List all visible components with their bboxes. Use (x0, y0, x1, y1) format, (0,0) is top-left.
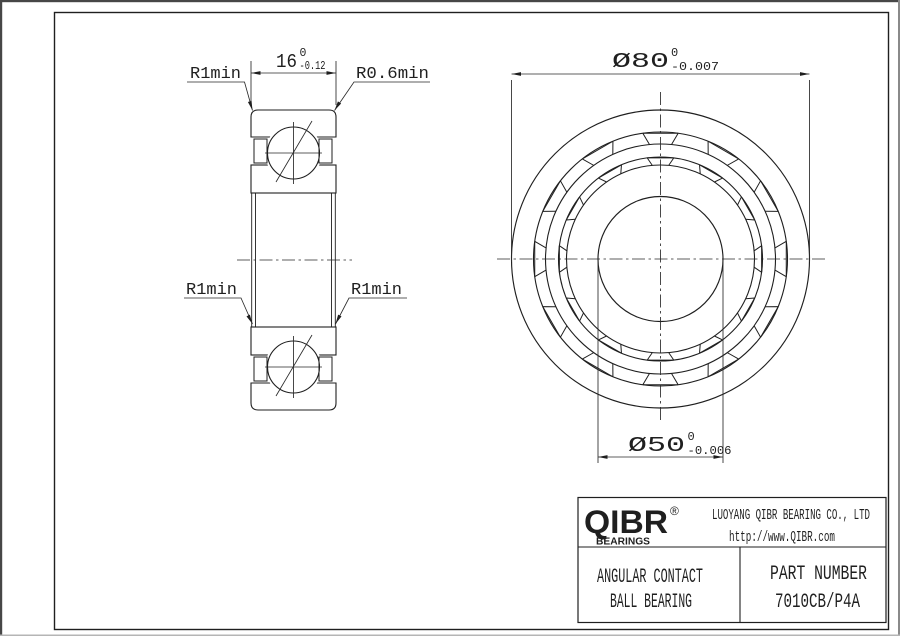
engineering-drawing-page: 16 0 -0.12 R1min R0.6min R1min R1min Ø80… (0, 0, 900, 636)
bearing-drawing-canvas: 16 0 -0.12 R1min R0.6min R1min R1min Ø80… (0, 0, 900, 636)
window-edge-left (0, 0, 2, 636)
company-name: LUOYANG QIBR BEARING CO., LTD (712, 507, 870, 524)
radius-label-top-left: R1min (190, 65, 241, 84)
company-website: http://www.QIBR.com (729, 529, 835, 546)
outer-dia-tol-lower: -0.007 (671, 60, 719, 74)
registered-trademark-icon: ® (670, 504, 679, 518)
width-dim-tol-upper: 0 (300, 47, 307, 60)
window-edge-top (0, 0, 900, 2)
part-number-label: PART NUMBER (770, 563, 867, 586)
outer-dia-value: Ø80 (612, 51, 669, 74)
width-dim-tol-lower: -0.12 (300, 60, 326, 73)
product-type-line2: BALL BEARING (610, 591, 692, 614)
radius-label-bottom-left: R1min (186, 281, 237, 300)
part-number-value: 7010CB/P4A (775, 591, 860, 614)
outer-dia-tol-upper: 0 (671, 46, 678, 60)
product-type-line1: ANGULAR CONTACT (597, 566, 703, 589)
radius-label-bottom-right: R1min (351, 281, 402, 300)
logo-subtext: BEARINGS (596, 536, 650, 548)
radius-label-top-right: R0.6min (356, 65, 429, 84)
bore-dia-tol-lower: -0.006 (688, 444, 732, 458)
width-dim-value: 16 (276, 51, 297, 73)
bore-dia-tol-upper: 0 (688, 430, 695, 444)
bore-dia-value: Ø50 (628, 435, 685, 458)
